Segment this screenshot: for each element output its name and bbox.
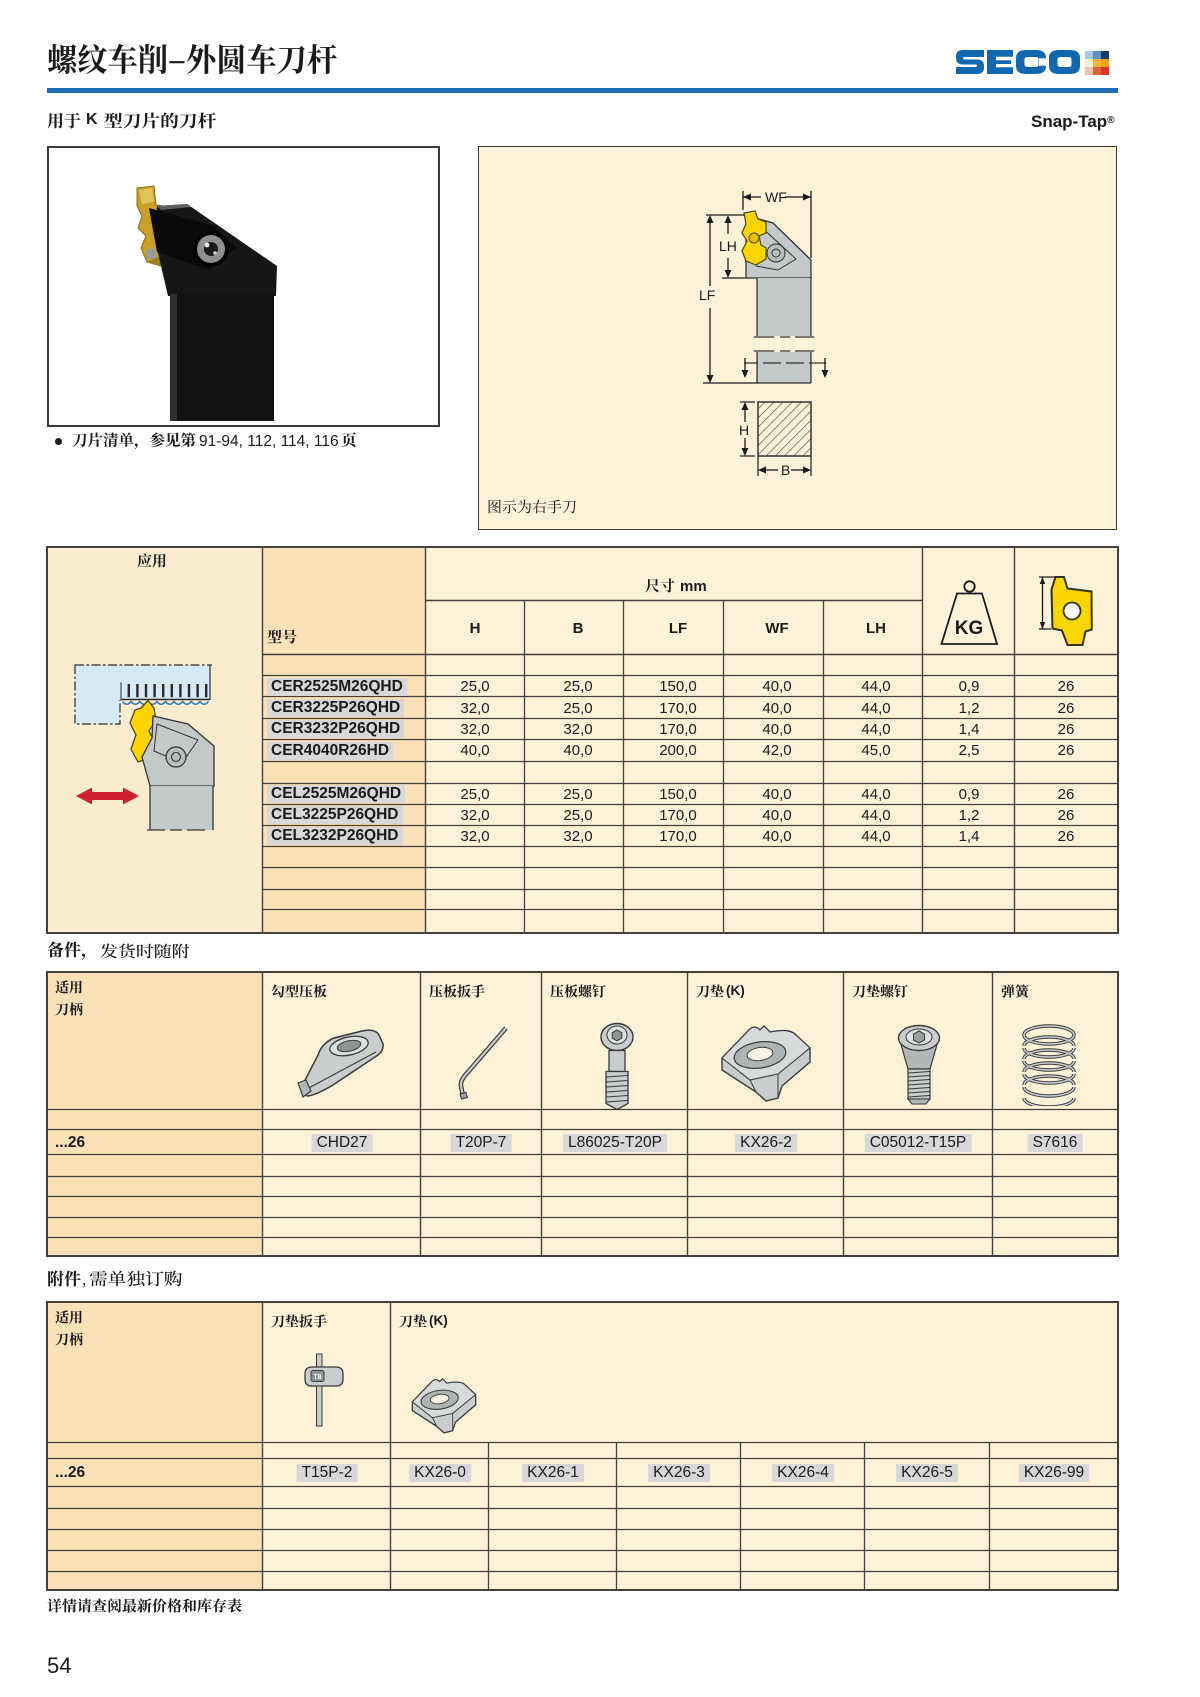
svg-text:B: B [781,462,790,478]
svg-text:T8: T8 [313,1374,321,1381]
svg-text:H: H [739,422,749,438]
svg-text:LH: LH [719,238,737,254]
svg-text:LF: LF [699,287,715,303]
svg-text:KG: KG [955,618,984,639]
svg-text:WF: WF [765,189,787,205]
